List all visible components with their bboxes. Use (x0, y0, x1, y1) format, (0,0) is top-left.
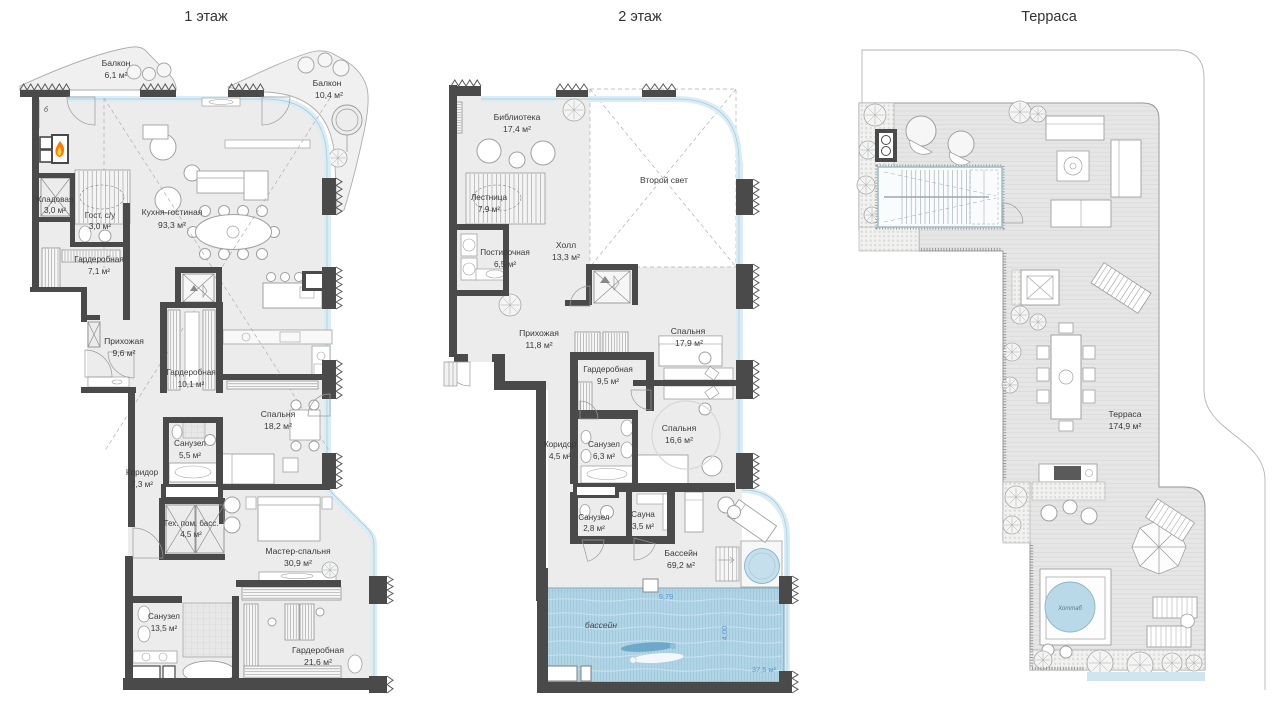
svg-text:17,9 м²: 17,9 м² (675, 338, 703, 348)
svg-text:Санузел: Санузел (588, 440, 620, 449)
svg-text:174,9 м²: 174,9 м² (1109, 421, 1142, 431)
svg-text:10,1 м²: 10,1 м² (178, 380, 205, 389)
svg-text:Прихожая: Прихожая (519, 328, 559, 338)
svg-text:3,0 м²: 3,0 м² (89, 222, 111, 231)
svg-text:6,3 м²: 6,3 м² (593, 452, 615, 461)
svg-text:Бассейн: Бассейн (664, 548, 698, 558)
svg-text:6,5 м²: 6,5 м² (494, 260, 516, 269)
svg-text:4,5 м²: 4,5 м² (180, 530, 202, 539)
svg-text:Гардеробная: Гардеробная (583, 365, 633, 374)
svg-text:Библиотека: Библиотека (494, 112, 541, 122)
svg-text:Балкон: Балкон (102, 58, 131, 68)
svg-text:3,5 м²: 3,5 м² (632, 522, 654, 531)
svg-text:13,3 м²: 13,3 м² (552, 252, 580, 262)
svg-text:37,5 м²: 37,5 м² (752, 665, 777, 674)
svg-text:10,4 м²: 10,4 м² (315, 90, 343, 100)
svg-text:5,5 м²: 5,5 м² (179, 451, 201, 460)
svg-text:Санузел: Санузел (578, 513, 609, 522)
svg-text:2,8 м²: 2,8 м² (583, 524, 605, 533)
svg-text:Балкон: Балкон (313, 78, 342, 88)
svg-text:Тех. пом. басс.: Тех. пом. басс. (164, 519, 219, 528)
svg-text:Терраса: Терраса (1109, 409, 1142, 419)
svg-text:Кладовая: Кладовая (37, 195, 74, 204)
svg-text:Санузел: Санузел (174, 439, 206, 448)
svg-text:13,5 м²: 13,5 м² (151, 624, 178, 633)
svg-text:69,2 м²: 69,2 м² (667, 560, 695, 570)
svg-text:7,3 м²: 7,3 м² (131, 480, 153, 489)
svg-text:93,3 м²: 93,3 м² (158, 220, 186, 230)
svg-text:Мастер-спальня: Мастер-спальня (265, 546, 331, 556)
svg-text:2 этаж: 2 этаж (618, 9, 662, 25)
svg-text:9,79: 9,79 (659, 592, 674, 601)
svg-text:Терраса: Терраса (1021, 9, 1078, 25)
svg-text:30,9 м²: 30,9 м² (284, 558, 312, 568)
svg-text:Санузел: Санузел (148, 612, 180, 621)
svg-text:7,1 м²: 7,1 м² (88, 267, 110, 276)
svg-text:бассейн: бассейн (585, 620, 617, 630)
svg-text:Второй свет: Второй свет (640, 175, 688, 185)
svg-text:3,0 м²: 3,0 м² (44, 206, 66, 215)
svg-text:Спальня: Спальня (671, 326, 706, 336)
svg-text:Гардеробная: Гардеробная (166, 368, 216, 377)
svg-text:16,6 м²: 16,6 м² (665, 435, 693, 445)
svg-text:17,4 м²: 17,4 м² (503, 124, 531, 134)
svg-text:Спальня: Спальня (261, 409, 296, 419)
svg-text:1 этаж: 1 этаж (184, 9, 228, 25)
svg-text:Кухня-гостиная: Кухня-гостиная (142, 207, 203, 217)
svg-text:9,5 м²: 9,5 м² (597, 377, 619, 386)
svg-text:Спальня: Спальня (662, 423, 697, 433)
svg-text:18,2 м²: 18,2 м² (264, 421, 292, 431)
svg-text:4,5 м²: 4,5 м² (549, 452, 571, 461)
svg-text:Холл: Холл (556, 240, 576, 250)
svg-text:Гардеробная: Гардеробная (74, 255, 124, 264)
svg-text:Прихожая: Прихожая (104, 336, 144, 346)
svg-text:Сауна: Сауна (631, 510, 655, 519)
svg-text:11,8 м²: 11,8 м² (525, 340, 552, 350)
svg-text:Коридор: Коридор (544, 440, 577, 449)
svg-text:6,1 м²: 6,1 м² (104, 70, 127, 80)
svg-text:Хоттаб: Хоттаб (1057, 606, 1082, 612)
svg-text:Лестница: Лестница (471, 193, 508, 202)
svg-text:Гост. с/у: Гост. с/у (85, 211, 116, 220)
svg-text:4,00: 4,00 (720, 626, 729, 641)
svg-text:21,6 м²: 21,6 м² (304, 657, 332, 667)
svg-text:Постирочная: Постирочная (480, 248, 530, 257)
svg-text:9,6 м²: 9,6 м² (112, 348, 135, 358)
svg-text:7,9 м²: 7,9 м² (478, 205, 500, 214)
svg-text:Гардеробная: Гардеробная (292, 645, 344, 655)
svg-text:Коридор: Коридор (126, 468, 159, 477)
